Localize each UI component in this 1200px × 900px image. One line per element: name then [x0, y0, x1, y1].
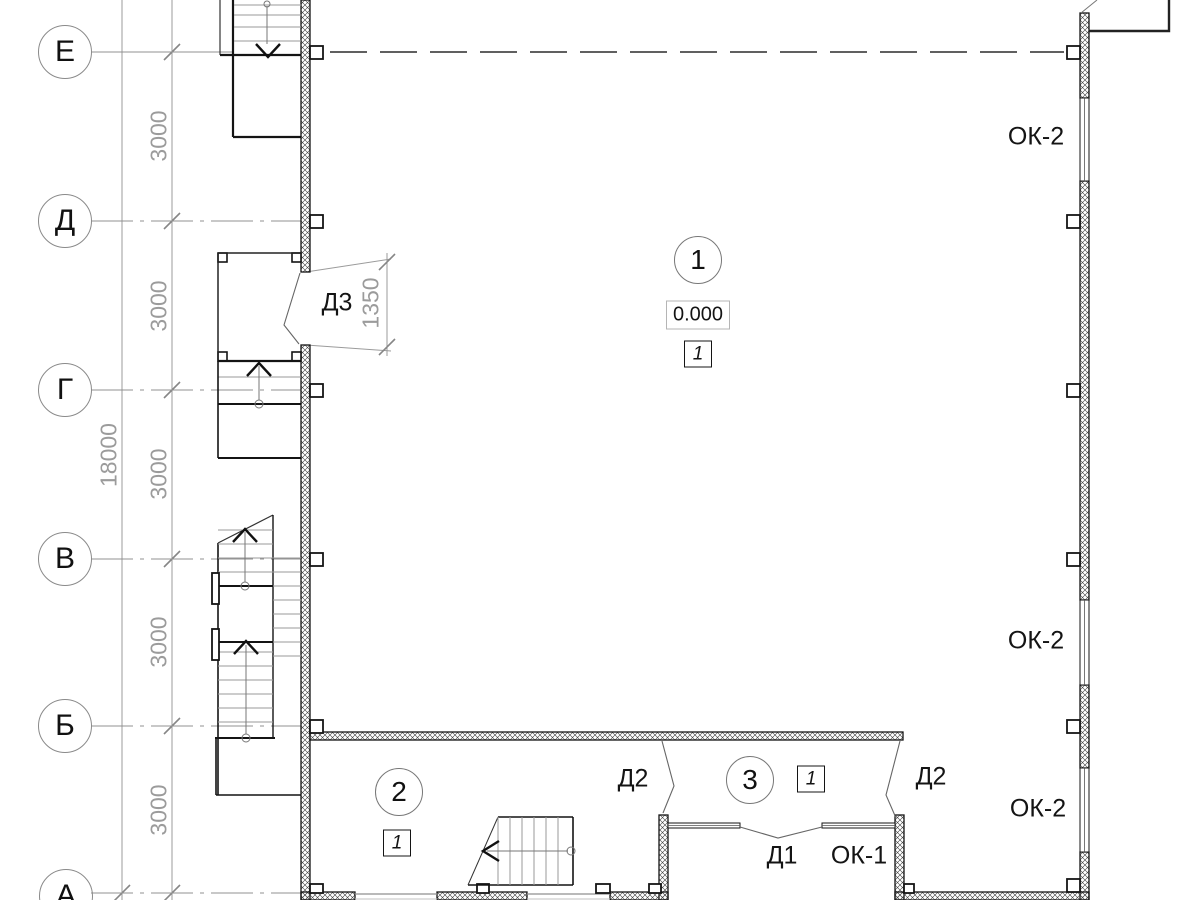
window-mark-ok1: ОК-1	[831, 842, 887, 871]
axis-bubble-b: Б	[38, 699, 92, 753]
dim-bay-5: 3000	[146, 784, 173, 835]
axis-bubble-d: Д	[38, 194, 92, 248]
room-bubble-3: 3	[726, 756, 774, 804]
walls	[301, 0, 1089, 900]
floor-mark-hall: 1	[684, 341, 712, 368]
stair-entrance	[468, 817, 575, 885]
door-d3-swing	[284, 273, 300, 344]
window-mark-ok2-top: ОК-2	[1008, 123, 1064, 152]
dim-bay-2: 3000	[146, 280, 173, 331]
dim-bay-3: 3000	[146, 448, 173, 499]
dim-total: 18000	[96, 423, 123, 487]
window-mark-ok2-mid: ОК-2	[1008, 627, 1064, 656]
door-mark-d2-left: Д2	[618, 765, 649, 794]
window-mark-ok2-bottom: ОК-2	[1010, 795, 1066, 824]
pilasters	[310, 46, 1080, 893]
dim-bay-1: 3000	[146, 110, 173, 161]
floor-mark-vestibule: 1	[797, 766, 825, 793]
landing-corner-marks	[218, 253, 301, 361]
door-d1-swing	[740, 827, 822, 838]
axis-bubble-g: Г	[38, 363, 92, 417]
top-right-structure	[1081, 0, 1169, 31]
door-mark-d1: Д1	[767, 842, 798, 871]
dim-door-offset: 1350	[358, 277, 385, 328]
elevation-mark: 0.000	[666, 301, 730, 330]
axis-bubble-v: В	[38, 532, 92, 586]
axis-bubble-e: Е	[38, 25, 92, 79]
floor-plan-drawing: Е Д Г В Б А 3000 3000 3000 3000 3000 180…	[0, 0, 1200, 900]
floor-mark-room2: 1	[383, 830, 411, 857]
room-bubble-2: 2	[375, 768, 423, 816]
door-mark-d3: Д3	[322, 289, 353, 318]
landing-room-d3	[218, 253, 301, 361]
door-mark-d2-right: Д2	[916, 763, 947, 792]
stair-main	[212, 515, 301, 795]
door-d2-right-swing	[886, 741, 900, 818]
door-swings	[284, 273, 900, 838]
room-bubble-1: 1	[674, 236, 722, 284]
dim-bay-4: 3000	[146, 616, 173, 667]
stair-g	[218, 361, 301, 458]
stair-top	[220, 0, 301, 137]
door-d2-left-swing	[662, 741, 674, 813]
